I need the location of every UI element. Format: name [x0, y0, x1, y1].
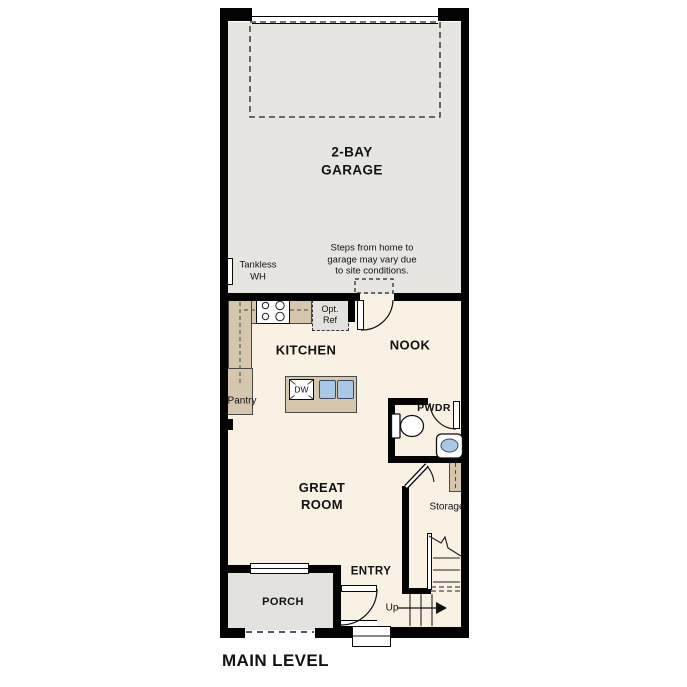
wall-garage-front-right: [438, 8, 469, 21]
kitchen-sink-basin-right: [337, 380, 354, 399]
opt-ref-label: Opt. Ref: [321, 304, 338, 327]
dishwasher-label: DW: [293, 384, 309, 395]
wall-garage-front-left: [220, 8, 252, 21]
plan-title: MAIN LEVEL: [222, 651, 329, 671]
porch-label: PORCH: [262, 595, 304, 609]
great-room-label: GREAT ROOM: [299, 480, 346, 514]
wall-pantry-stub: [220, 419, 233, 430]
powder-label: PWDR: [417, 402, 451, 416]
entry-label: ENTRY: [351, 565, 392, 580]
nook-label: NOOK: [390, 338, 431, 355]
wall-powder-left: [388, 398, 395, 463]
range-cooktop: [256, 299, 290, 324]
kitchen-sink-basin-left: [319, 380, 336, 399]
pantry-label: Pantry: [228, 395, 257, 408]
garage-label: 2-BAY GARAGE: [321, 143, 383, 178]
wall-stair-hall: [402, 486, 409, 590]
stairs-up-label: Up: [386, 602, 399, 615]
wall-right-exterior: [461, 8, 469, 638]
garage-steps-note: Steps from home to garage may vary due t…: [327, 243, 416, 278]
floor-plan-canvas: 2-BAY GARAGE Tankless WH Steps from home…: [0, 0, 687, 687]
wall-porch-front-left: [220, 628, 245, 638]
wall-garage-kitchen-left: [220, 293, 360, 301]
entry-step: [352, 626, 391, 647]
tankless-wh-label: Tankless WH: [240, 260, 277, 285]
wall-porch-front-right: [315, 628, 341, 638]
powder-door-leaf: [453, 401, 460, 429]
storage-label: Storage: [429, 501, 464, 514]
wall-left-exterior: [220, 8, 228, 638]
wall-greatroom-south-left: [220, 565, 253, 573]
nook-door-leaf: [357, 300, 364, 330]
wall-garage-nook-right: [394, 293, 468, 301]
stair-railing: [427, 533, 432, 590]
porch-window: [250, 563, 309, 574]
wall-kitchen-stub: [348, 293, 355, 322]
front-door-leaf: [341, 585, 377, 592]
kitchen-label: KITCHEN: [276, 343, 337, 360]
garage-door-panel: [252, 16, 438, 24]
pantry-cabinet: [225, 368, 253, 415]
wall-powder-bottom: [388, 456, 469, 463]
